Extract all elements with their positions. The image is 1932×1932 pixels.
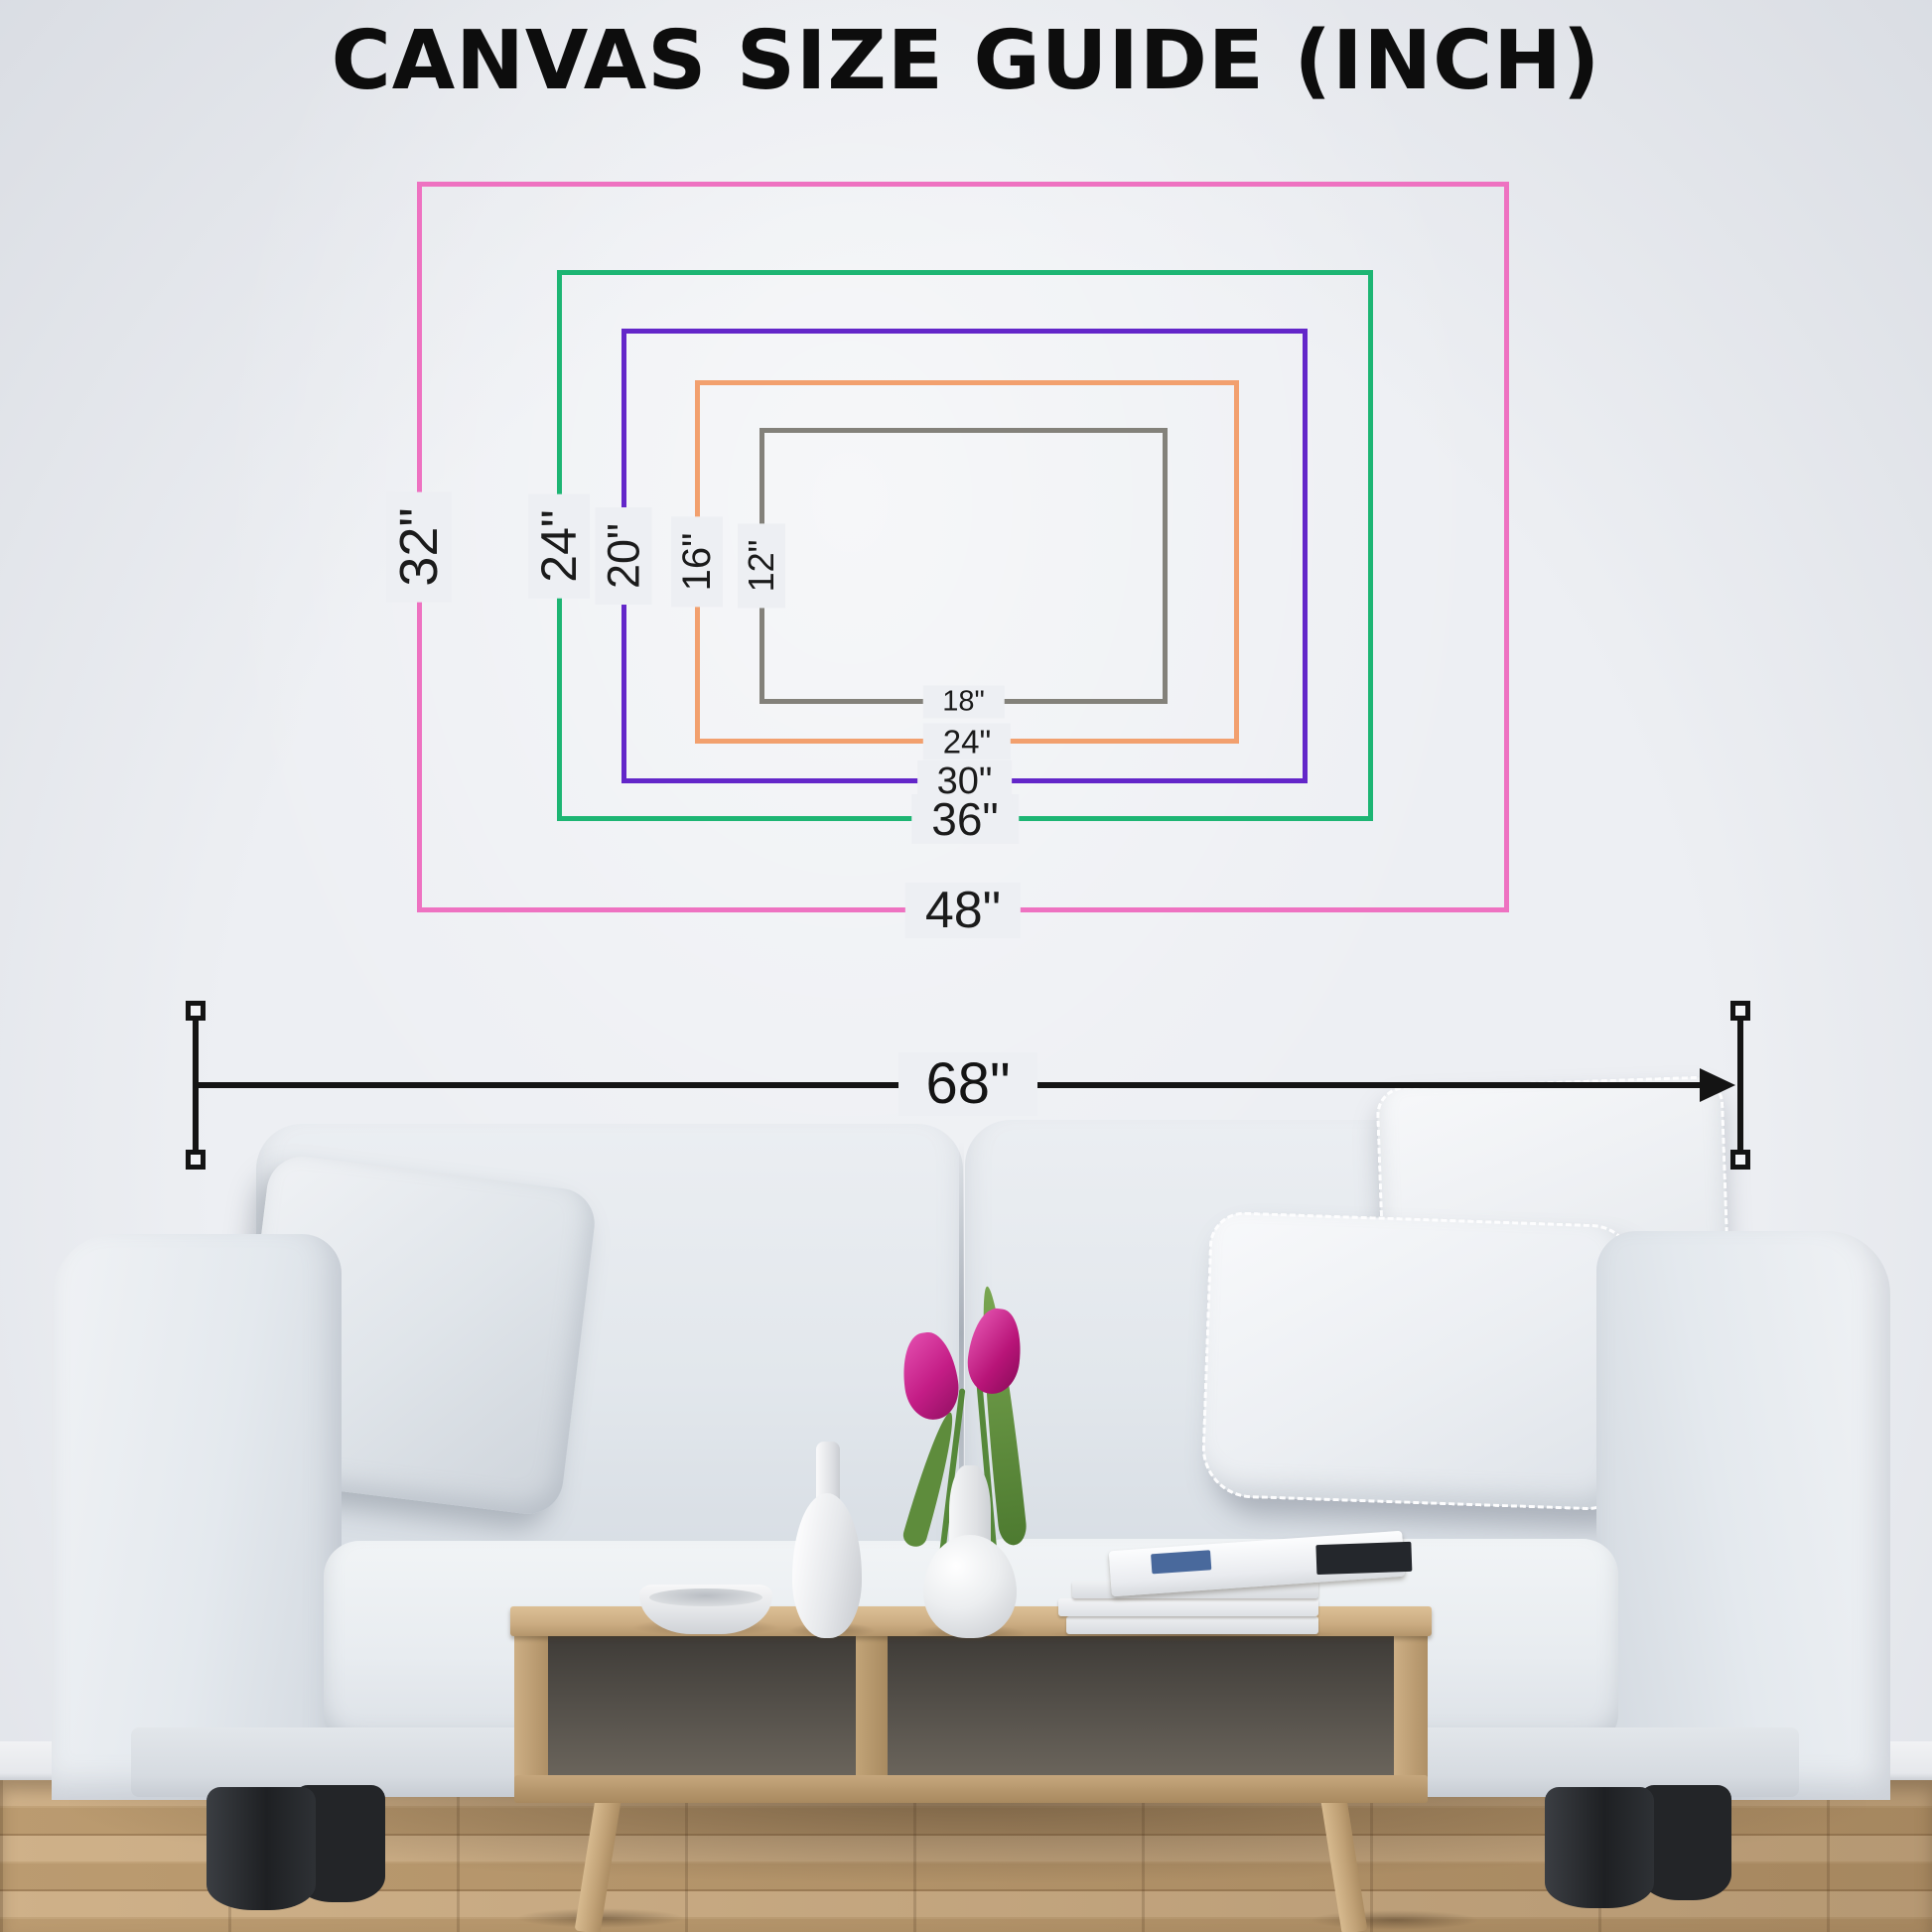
measurement-line-left <box>196 1082 898 1088</box>
canvas-height-label-20: 20" <box>596 507 652 605</box>
magazine-photo <box>1151 1550 1211 1574</box>
sofa-armrest-right <box>1596 1231 1890 1800</box>
page-title: CANVAS SIZE GUIDE (INCH) <box>0 14 1932 108</box>
measurement-handle-icon <box>186 1001 206 1021</box>
measurement-end-bar-right <box>1737 1009 1743 1160</box>
measurement-handle-icon <box>1730 1001 1750 1021</box>
measurement-handle-icon <box>186 1150 206 1170</box>
magazine-stack-bottom <box>1066 1616 1318 1634</box>
canvas-height-label-12: 12" <box>738 524 785 609</box>
measurement-end-bar-left <box>193 1009 199 1160</box>
canvas-height-label-16: 16" <box>671 517 723 608</box>
sofa-leg-right <box>1545 1787 1654 1908</box>
sofa-armrest-left <box>52 1234 342 1800</box>
pillow-white-front-right <box>1201 1212 1636 1511</box>
sofa-leg-left <box>207 1787 316 1910</box>
canvas-width-label-48: 48" <box>905 883 1021 938</box>
canvas-height-label-24: 24" <box>528 493 590 598</box>
canvas-width-label-24: 24" <box>923 724 1011 760</box>
measurement-handle-icon <box>1730 1150 1750 1170</box>
table-side-panel-left <box>514 1634 548 1779</box>
table-shelf-divider <box>856 1634 888 1779</box>
measurement-line-right <box>1037 1082 1705 1088</box>
table-leg-shadow-right <box>1311 1910 1479 1930</box>
measurement-arrowhead-right <box>1700 1068 1735 1102</box>
canvas-width-label-30: 30" <box>917 760 1013 802</box>
canvas-width-label-18: 18" <box>922 686 1005 719</box>
table-side-panel-right <box>1394 1634 1428 1779</box>
wall-width-label: 68" <box>898 1052 1037 1116</box>
table-open-shelf <box>546 1634 1396 1779</box>
canvas-size-guide-poster: CANVAS SIZE GUIDE (INCH) 32" 48" 24" 36"… <box>0 0 1932 1932</box>
magazine-stack-middle <box>1058 1598 1318 1616</box>
canvas-outline-18x12: 12" 18" <box>759 428 1168 704</box>
table-bottom-shelf <box>514 1775 1428 1803</box>
canvas-height-label-32: 32" <box>386 491 452 602</box>
